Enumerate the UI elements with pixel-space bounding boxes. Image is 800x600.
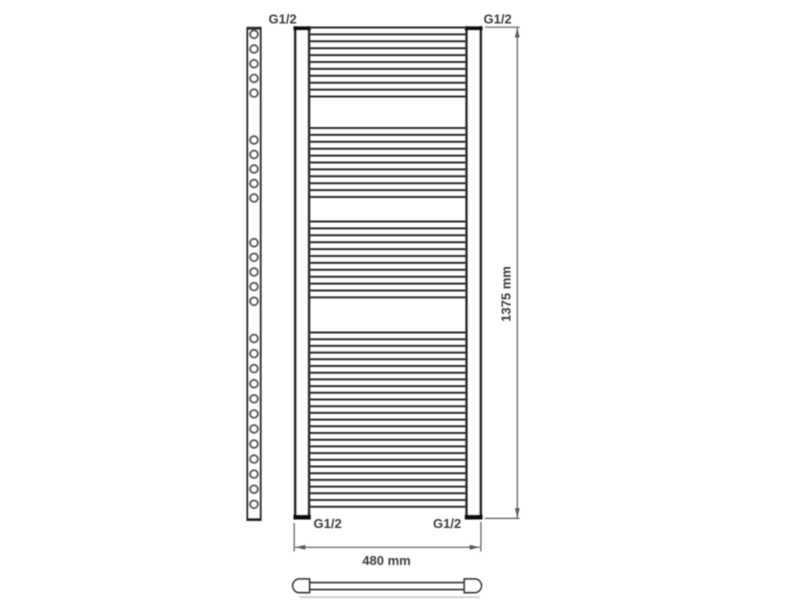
svg-text:G1/2: G1/2 [484, 12, 512, 27]
svg-text:G1/2: G1/2 [314, 516, 342, 531]
svg-text:480 mm: 480 mm [362, 553, 410, 568]
svg-text:G1/2: G1/2 [269, 12, 297, 27]
svg-text:G1/2: G1/2 [433, 516, 461, 531]
svg-text:1375 mm: 1375 mm [498, 266, 513, 322]
